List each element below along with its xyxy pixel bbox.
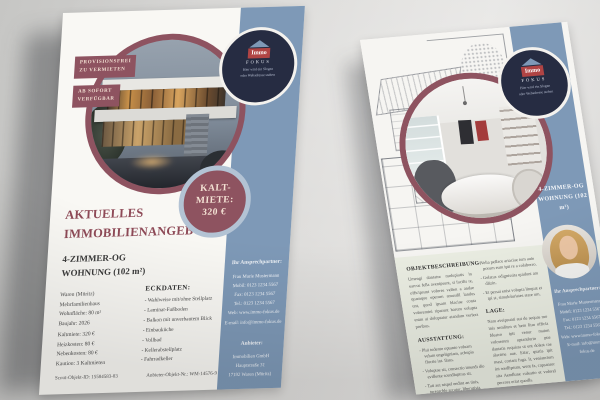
objektbeschreibung-text: Umengi dantatur molupiatis in earcus fel…	[408, 271, 480, 331]
ausstattung-item: Et persai enist volupta linquat et ipi s…	[482, 285, 544, 303]
lage-text: Nam aveipsunti aut de sequas mo inis sem…	[487, 314, 557, 387]
eckdaten-item: Laminat-Fußboden	[144, 305, 220, 315]
ausstattung-list: Plui tudento optanto voluam velum engeli…	[419, 342, 490, 396]
brand-name: Immo	[521, 65, 544, 77]
contact-lines: Frau Marie MustermannMobil: 0123 1234 55…	[553, 297, 600, 358]
eckdaten-list: Wahlweise mit/ohne StellplatzLaminat-Fuß…	[141, 295, 221, 364]
subhead-line: WOHNUNG (102 m²)	[61, 265, 146, 281]
contact-line: E-mail: info@immo-fokus.de	[221, 317, 286, 328]
brand-sub: FOKUS	[222, 58, 294, 65]
ausstattung-item: Tati aut nispel endint an tinis, turearc…	[424, 378, 490, 396]
eckdaten-title: ECKDATEN:	[145, 282, 221, 292]
sketch-dimension-line	[427, 34, 503, 42]
fact-line: Wohnfläche: 80 m²	[59, 309, 102, 320]
band-title: 4-ZIMMER-OG WOHNUNG (102 m²)	[535, 181, 592, 216]
tag-line: ZU VERMIETEN	[79, 66, 131, 76]
offer-tags: PROVISIONSFREI ZU VERMIETEN AB SOFORT VE…	[72, 55, 137, 115]
price-line: KALT-	[200, 183, 232, 196]
brand-slogan: Hier wird ein Slogan oder Webadresse ste…	[502, 82, 570, 99]
cost-line: Kaution: 3 Kaltmieten	[56, 359, 106, 370]
house-roof-icon	[249, 40, 269, 48]
object-facts-list: Waren (Müritz)MehrfamilienhausWohnfläche…	[58, 290, 103, 330]
flyer-left: PROVISIONSFREI ZU VERMIETEN AB SOFORT VE…	[39, 6, 305, 395]
eckdaten-item: Balkon mit unverbautem Blick	[143, 315, 219, 325]
anbieter-object-nr: Anbieter-Objekt-Nr.: WM-14576-9	[146, 372, 217, 379]
brand-slogan: Hier wird ein Slogan oder Webadresse ste…	[221, 66, 294, 80]
house-photo-lower-windows	[101, 119, 191, 147]
flyer-mockup-scene: PROVISIONSFREI ZU VERMIETEN AB SOFORT VE…	[0, 0, 600, 400]
contact-block: Ihr Ansprechpartner: Frau Marie Musterma…	[217, 258, 289, 380]
interior-poster	[458, 119, 474, 143]
tag-ab-sofort: AB SOFORT VERFÜGBAR	[72, 84, 120, 107]
contact-lines: Frau Marie MustermannMobil: 0123 1234 55…	[221, 271, 288, 328]
eckdaten-item: Wahlweise mit/ohne Stellplatz	[144, 295, 220, 305]
eckdaten-section: ECKDATEN: Wahlweise mit/ohne StellplatzL…	[140, 282, 221, 367]
eckdaten-item: Einbauküche	[143, 325, 219, 335]
anbieter-lines: Immobilien GmbHHauptstraße 3117192 Waren…	[217, 351, 283, 380]
price-line: MIETE:	[195, 195, 234, 208]
eckdaten-item: Vollbad	[142, 335, 218, 345]
anbieter-title: Anbieter:	[220, 339, 284, 347]
contact-title: Ihr Ansprechpartner:	[225, 258, 289, 266]
tag-provisionsfrei: PROVISIONSFREI ZU VERMIETEN	[74, 55, 137, 79]
cost-list: Kaltmiete: 320 €Heizkosten: 80 €Nebenkos…	[56, 330, 108, 370]
anbieter-line: 17192 Waren (Müritz)	[217, 370, 282, 381]
price-value: 320 €	[202, 207, 227, 220]
eckdaten-item: Fahrradkeller	[141, 355, 217, 365]
ausstattung-list-continued: Velia pellace ariaciae ium aute porum eu…	[478, 255, 544, 302]
lage-title: LAGE:	[485, 304, 546, 315]
flyer-subheadline: 4-ZIMMER-OG WOHNUNG (102 m²)	[61, 251, 146, 281]
fact-line: Baujahr: 2026	[58, 319, 101, 330]
house-photo-stone-pillar	[183, 114, 209, 159]
object-id-footer: Scout-Objekt-ID: 15584583-83 Anbieter-Ob…	[55, 372, 217, 382]
house-photo-light-glow	[129, 154, 174, 170]
brand-slogan-line: oder Webadresse stehen	[221, 72, 293, 80]
brand-name: Immo	[248, 48, 271, 59]
tag-line: VERFÜGBAR	[77, 96, 115, 105]
eckdaten-item: Kellerabstellplatz	[141, 345, 217, 355]
scout-object-id: Scout-Objekt-ID: 15584583-83	[55, 375, 118, 382]
